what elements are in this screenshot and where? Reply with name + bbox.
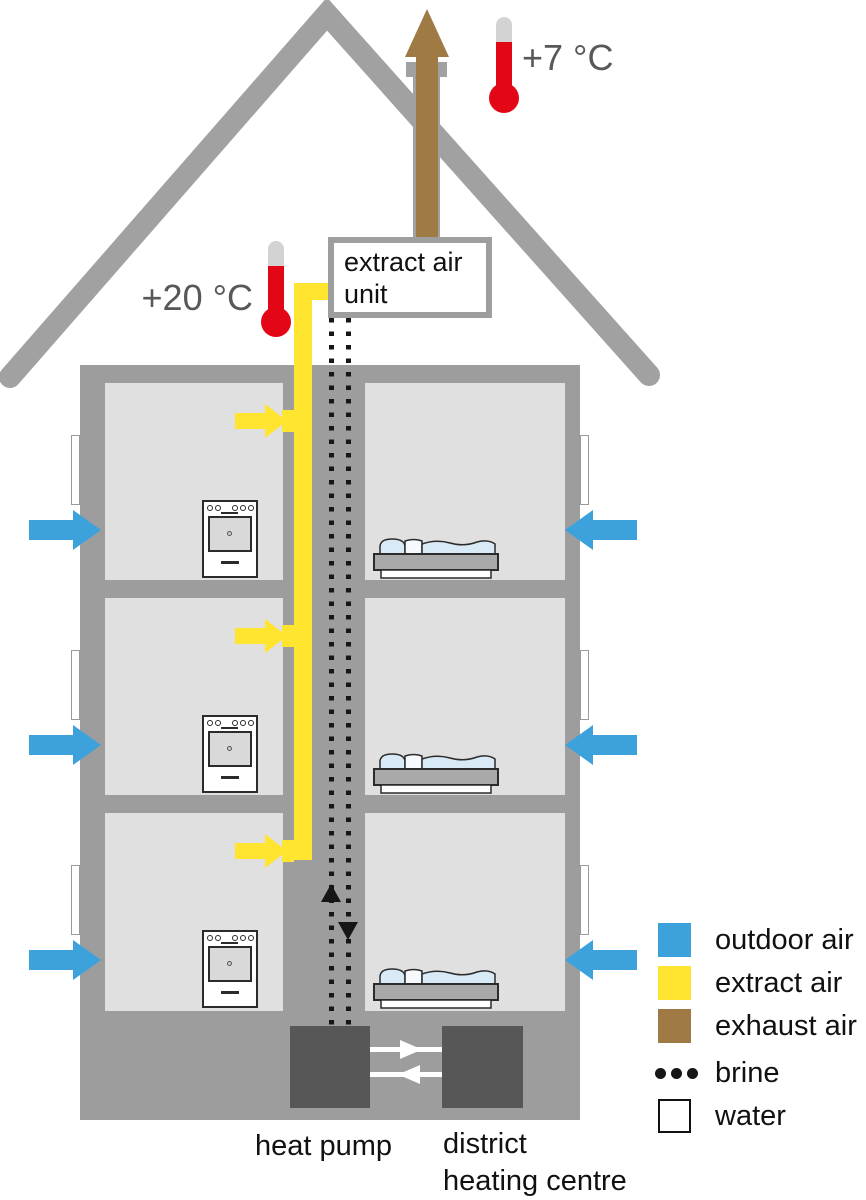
- bed-floor-3: [372, 966, 500, 1010]
- extract-air-arrow-floor-2: [235, 619, 287, 653]
- legend-row-exhaust-air: exhaust air: [655, 1009, 857, 1043]
- legend-row-extract-air: extract air: [655, 966, 842, 1000]
- exhaust-air-duct: [416, 46, 438, 240]
- district-heating-label: district heating centre: [443, 1126, 627, 1200]
- indoor-temperature-label: +20 °C: [140, 277, 253, 319]
- bed-floor-2: [372, 751, 500, 795]
- thermometer-exhaust-icon: [486, 16, 522, 114]
- extract-air-unit-label-line1: extract air: [344, 246, 486, 278]
- legend-label: water: [715, 1100, 786, 1133]
- brine-up-arrow-icon: [321, 884, 341, 902]
- brine-line-left: [329, 318, 334, 1026]
- ventilation-diagram: extract air unit +7 °C +20 °C: [0, 0, 866, 1200]
- exhaust-air-arrow-icon: [405, 9, 449, 57]
- outdoor-air-arrow-right-floor-3: [565, 940, 637, 980]
- extract-air-swatch: [658, 966, 691, 1000]
- water-flow-arrows: [370, 1040, 442, 1085]
- heat-pump-box: [290, 1026, 370, 1108]
- water-swatch: [658, 1099, 691, 1133]
- exhaust-air-swatch: [658, 1009, 691, 1043]
- window-right-floor-1: [580, 435, 589, 505]
- outdoor-air-arrow-left-floor-1: [29, 510, 101, 550]
- stove-floor-1: [202, 500, 258, 578]
- district-heating-label-line1: district: [443, 1126, 627, 1163]
- brine-dots-icon: [655, 1068, 705, 1079]
- window-right-floor-3: [580, 865, 589, 935]
- stove-floor-2: [202, 715, 258, 793]
- legend-label: outdoor air: [715, 924, 854, 957]
- outdoor-air-arrow-left-floor-2: [29, 725, 101, 765]
- heat-pump-label: heat pump: [255, 1128, 392, 1165]
- window-left-floor-2: [71, 650, 80, 720]
- window-left-floor-3: [71, 865, 80, 935]
- bed-floor-1: [372, 536, 500, 580]
- water-arrow-left-icon: [398, 1065, 420, 1084]
- stove-floor-3: [202, 930, 258, 1008]
- extract-air-unit-label-line2: unit: [344, 278, 486, 310]
- extract-air-unit-box: extract air unit: [328, 237, 492, 318]
- extract-air-duct: [294, 283, 312, 860]
- window-right-floor-2: [580, 650, 589, 720]
- outdoor-air-arrow-right-floor-1: [565, 510, 637, 550]
- legend-row-water: water: [655, 1099, 786, 1133]
- district-heating-box: [442, 1026, 523, 1108]
- thermometer-indoor-icon: [258, 240, 294, 338]
- legend-row-brine: brine: [655, 1056, 780, 1090]
- brine-line-right: [346, 318, 351, 1026]
- legend: outdoor air extract air exhaust air brin…: [655, 0, 866, 1200]
- extract-air-arrow-floor-3: [235, 834, 287, 868]
- legend-row-outdoor-air: outdoor air: [655, 923, 854, 957]
- brine-down-arrow-icon: [338, 922, 358, 940]
- outdoor-air-arrow-left-floor-3: [29, 940, 101, 980]
- exhaust-temperature-label: +7 °C: [522, 37, 613, 79]
- extract-air-arrow-floor-1: [235, 404, 287, 438]
- legend-label: exhaust air: [715, 1010, 857, 1043]
- legend-label: brine: [715, 1057, 780, 1090]
- outdoor-air-swatch: [658, 923, 691, 957]
- water-arrow-right-icon: [400, 1040, 422, 1059]
- outdoor-air-arrow-right-floor-2: [565, 725, 637, 765]
- legend-label: extract air: [715, 967, 842, 1000]
- window-left-floor-1: [71, 435, 80, 505]
- district-heating-label-line2: heating centre: [443, 1163, 627, 1200]
